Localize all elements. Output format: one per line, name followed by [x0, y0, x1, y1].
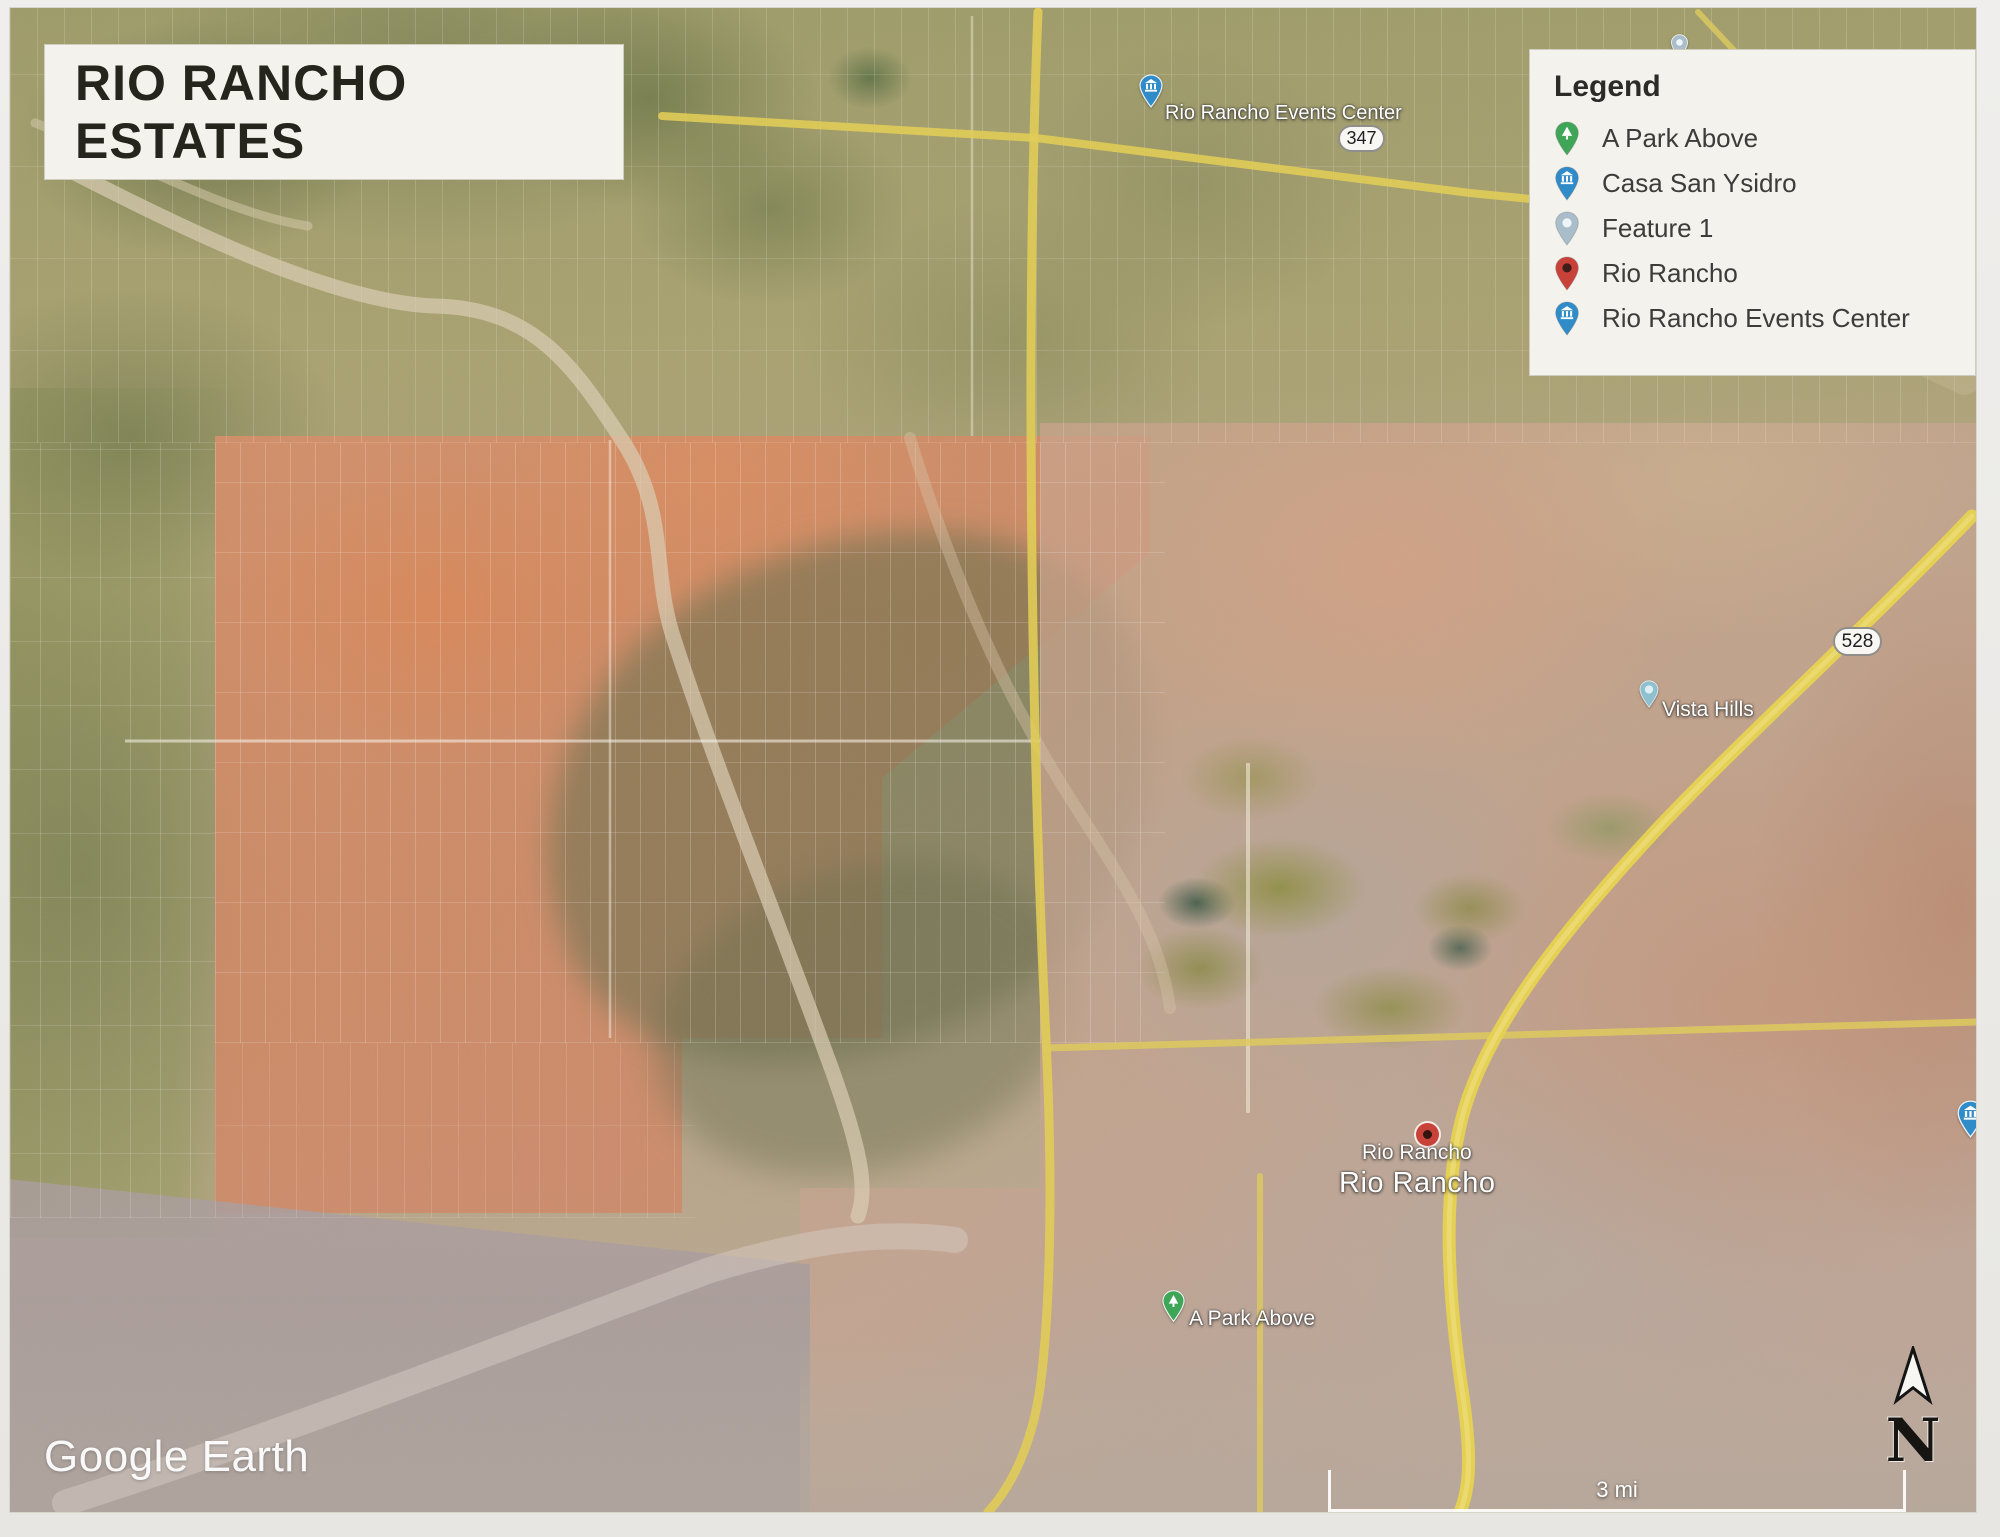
legend-item-label: Rio Rancho Events Center — [1602, 303, 1910, 334]
scale-bar: 3 mi — [1328, 1470, 1906, 1512]
casa-san-ysidro-map-pin-icon — [1956, 1100, 1976, 1138]
red-pin-icon — [1554, 256, 1580, 291]
vista-hills-map-pin-icon — [1638, 680, 1660, 708]
legend-item-label: Casa San Ysidro — [1602, 168, 1797, 199]
building-pin-icon — [1554, 166, 1580, 201]
legend-panel: Legend A Park Above Casa San Ysidro — [1530, 50, 1975, 375]
legend-item-park-above: A Park Above — [1554, 116, 1975, 161]
legend-item-label: Feature 1 — [1602, 213, 1713, 244]
north-label: N — [1878, 1413, 1948, 1470]
park-pin-icon — [1554, 121, 1580, 156]
rio-rancho-map-label-small: Rio Rancho — [1362, 1141, 1472, 1165]
park-above-map-label: A Park Above — [1189, 1307, 1315, 1331]
park-above-map-pin-icon — [1162, 1289, 1185, 1323]
rio-rancho-map-label-large: Rio Rancho — [1339, 1167, 1496, 1200]
page-title: RIO RANCHO ESTATES — [75, 54, 623, 170]
scanned-page: Rio Rancho Events Center 347 Vista Hills… — [0, 0, 2000, 1537]
events-center-map-label: Rio Rancho Events Center — [1165, 102, 1402, 125]
legend-item-events-center: Rio Rancho Events Center — [1554, 296, 1975, 341]
building-pin-icon — [1554, 301, 1580, 336]
legend-item-label: Rio Rancho — [1602, 258, 1738, 289]
north-arrow-icon — [1888, 1346, 1938, 1408]
map-title-box: RIO RANCHO ESTATES — [45, 45, 623, 179]
legend-item-casa-san-ysidro: Casa San Ysidro — [1554, 161, 1975, 206]
north-compass: N — [1878, 1346, 1948, 1470]
scale-label: 3 mi — [1596, 1477, 1638, 1503]
legend-heading: Legend — [1554, 70, 1975, 104]
legend-item-rio-rancho: Rio Rancho — [1554, 251, 1975, 296]
vista-hills-map-label: Vista Hills — [1662, 698, 1754, 722]
route-528-shield: 528 — [1833, 627, 1882, 656]
legend-item-label: A Park Above — [1602, 123, 1758, 154]
satellite-map: Rio Rancho Events Center 347 Vista Hills… — [10, 8, 1976, 1512]
legend-item-feature-1: Feature 1 — [1554, 206, 1975, 251]
feature-pin-icon — [1554, 211, 1580, 246]
google-earth-watermark: Google Earth — [44, 1432, 309, 1482]
route-347-shield: 347 — [1338, 125, 1385, 152]
events-center-map-pin-icon — [1138, 74, 1164, 108]
